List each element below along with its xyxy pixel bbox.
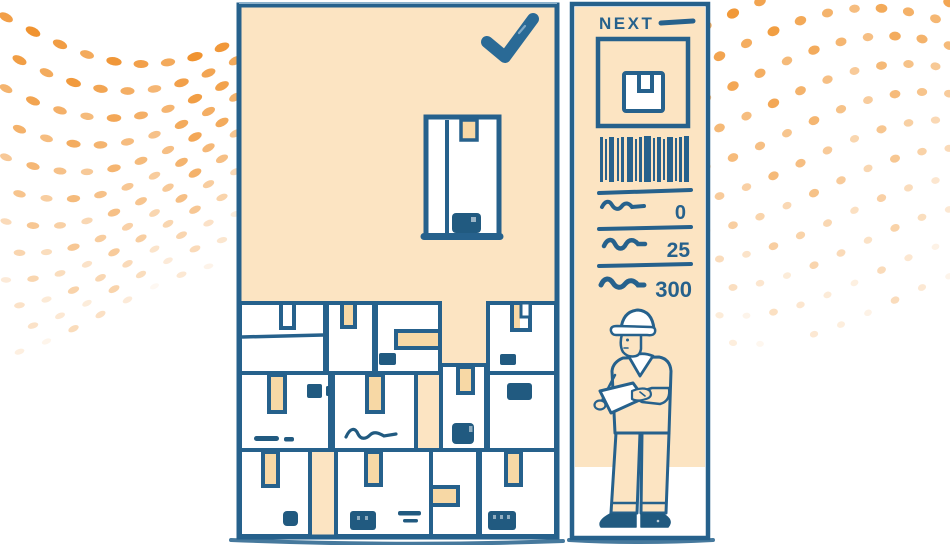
barcode-icon: [600, 136, 689, 182]
shipping-label: [379, 353, 396, 365]
worker-leg: [611, 433, 640, 513]
marker-dash: [254, 436, 279, 441]
shipping-label: [283, 511, 298, 526]
shipping-label: [507, 383, 532, 400]
shipping-label: [452, 213, 481, 233]
stat-value: 25: [667, 239, 691, 262]
stacked-box: [327, 303, 374, 373]
tape-slot: [431, 487, 458, 505]
stacked-box: [336, 450, 431, 536]
tape-tab: [506, 452, 521, 485]
stacked-box: [333, 373, 416, 450]
shipping-label: [307, 384, 322, 398]
worker-left-hand: [595, 401, 606, 410]
worker-shoe: [600, 514, 636, 527]
stacked-box: [488, 303, 556, 373]
stacked-box: [240, 303, 325, 373]
marker-dash: [284, 437, 294, 442]
stacked-box: [480, 450, 556, 536]
worker-shoe: [641, 514, 670, 527]
box-icon: [624, 73, 663, 111]
tape-tab: [367, 375, 383, 412]
game-board-panel: [231, 3, 563, 544]
worker-face: [621, 333, 641, 357]
stat-value: 0: [675, 202, 686, 224]
tape-tab: [342, 303, 355, 327]
stacked-box: [441, 365, 486, 450]
tape-tab: [263, 452, 278, 486]
stacked-boxes: [240, 303, 556, 536]
sidebar-ground-line: [569, 540, 713, 542]
marker-dash: [403, 519, 418, 523]
illustration-stage: NEXT: [0, 0, 950, 545]
tape-slot: [396, 331, 440, 348]
worker-eye: [626, 339, 629, 342]
dash-icon: [661, 21, 693, 23]
shipping-label: [488, 511, 516, 530]
tape-tab: [269, 375, 285, 412]
tape-tab: [281, 303, 294, 328]
tape-tab: [458, 367, 473, 393]
worker-right-hand: [632, 389, 651, 401]
tape-tab: [366, 452, 381, 485]
hat-brim: [611, 326, 655, 335]
marker-dash: [398, 511, 421, 516]
stacked-box: [488, 373, 556, 450]
stacked-box: [240, 373, 330, 450]
stacked-box: [431, 450, 478, 536]
label-detail: [471, 217, 476, 222]
divider: [599, 227, 691, 229]
stat-value: 300: [655, 277, 692, 302]
sidebar-panel: NEXT: [569, 4, 713, 542]
divider: [599, 264, 691, 266]
shipping-label: [350, 511, 376, 530]
illustration: NEXT: [0, 0, 950, 545]
tape-tab: [461, 120, 477, 140]
shipping-label: [500, 354, 516, 365]
worker-leg: [641, 433, 669, 513]
label-tick: [326, 386, 330, 396]
stacked-box: [376, 303, 440, 373]
falling-box: [424, 117, 500, 237]
stacked-box: [240, 450, 310, 536]
next-label: NEXT: [599, 14, 654, 33]
board-ground-line: [231, 540, 563, 544]
